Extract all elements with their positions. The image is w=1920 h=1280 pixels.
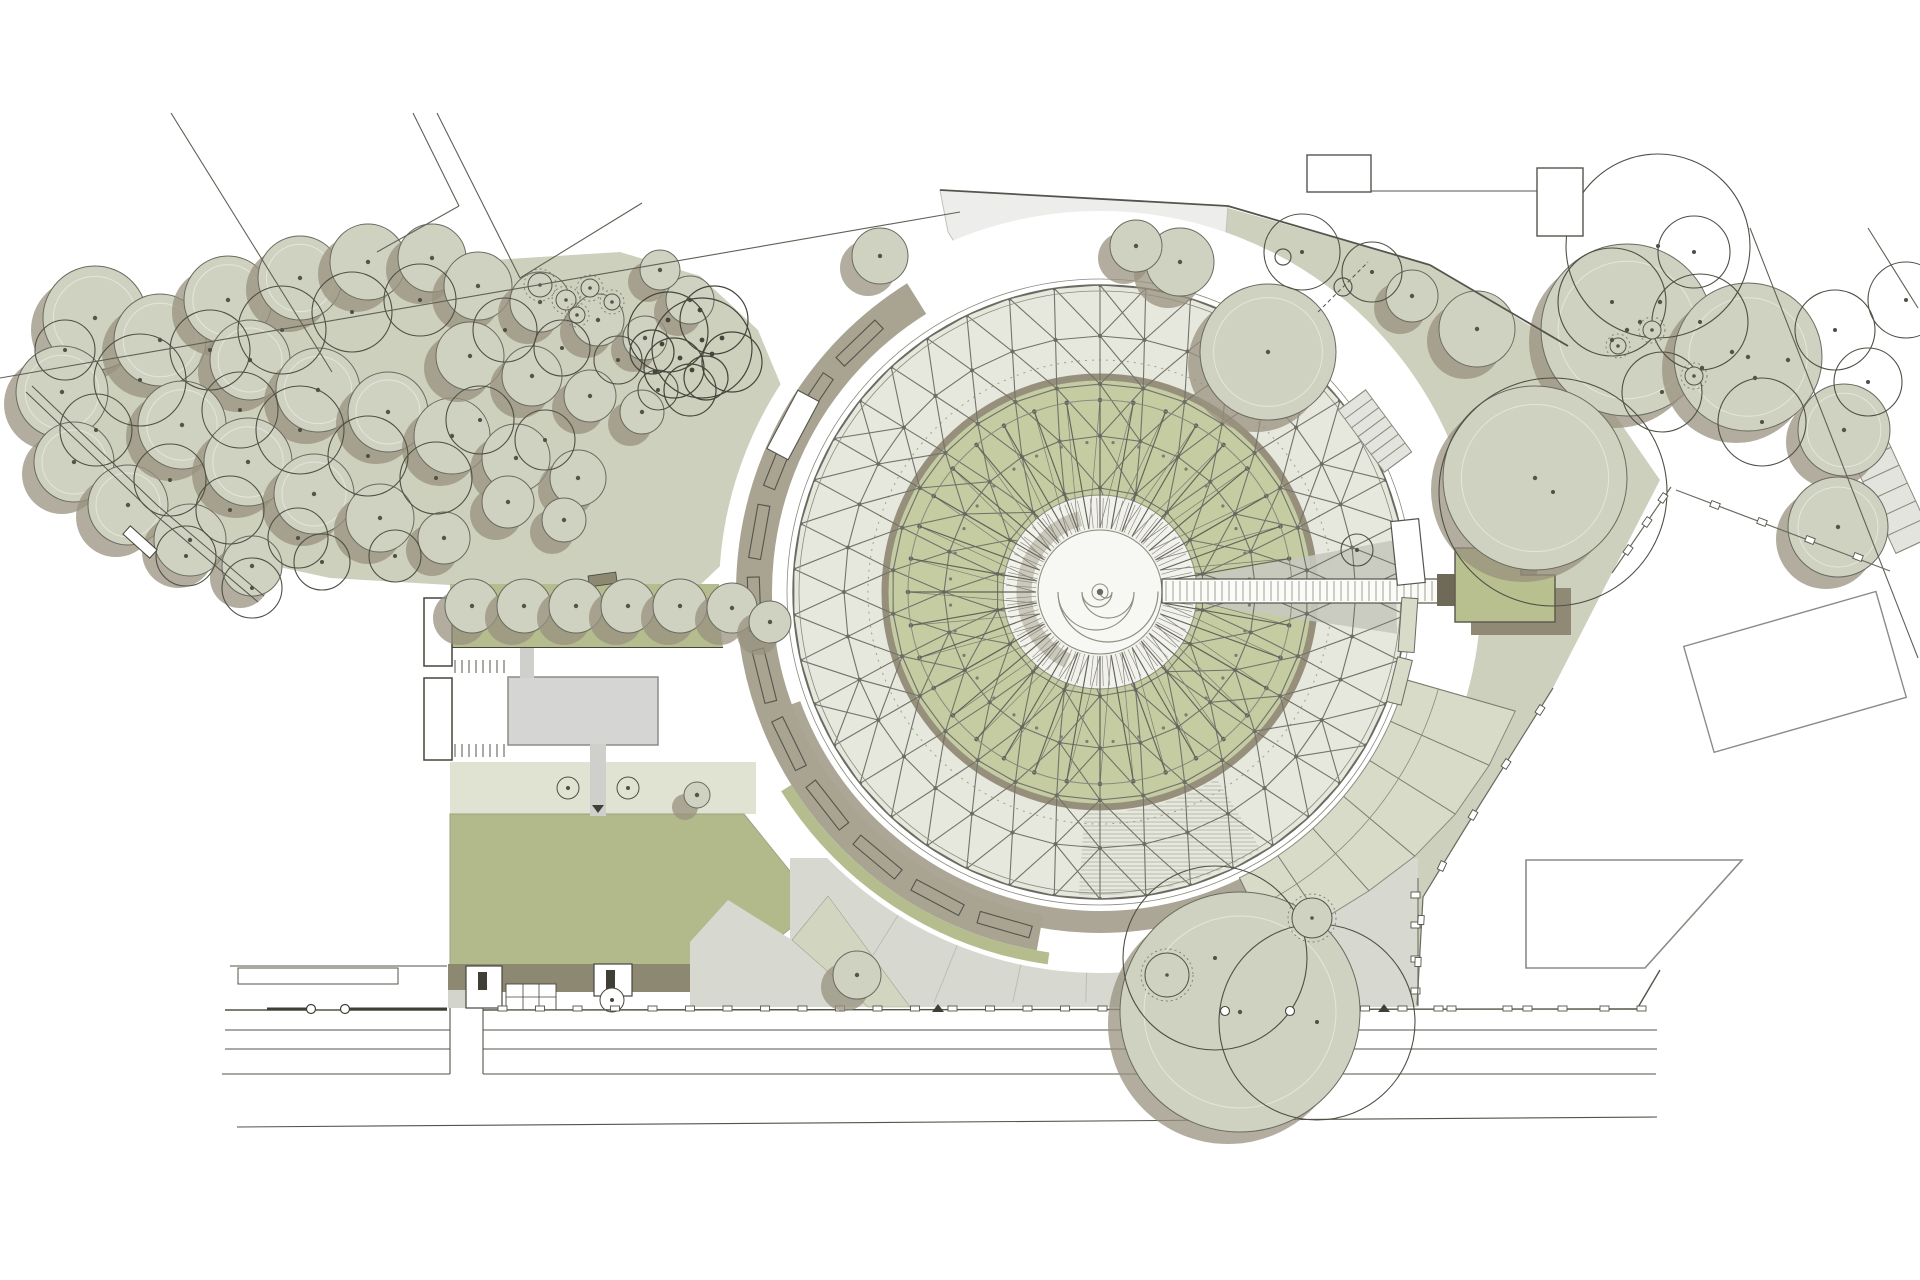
tree-canopy: [1776, 477, 1888, 589]
tree-small: [1639, 317, 1665, 343]
site-plan-image: [0, 0, 1920, 1280]
site-plan-drawing: [0, 0, 1920, 1280]
tree-outline: [1868, 262, 1920, 338]
site-plan-svg: [0, 0, 1920, 1280]
tree-small: [577, 275, 603, 301]
